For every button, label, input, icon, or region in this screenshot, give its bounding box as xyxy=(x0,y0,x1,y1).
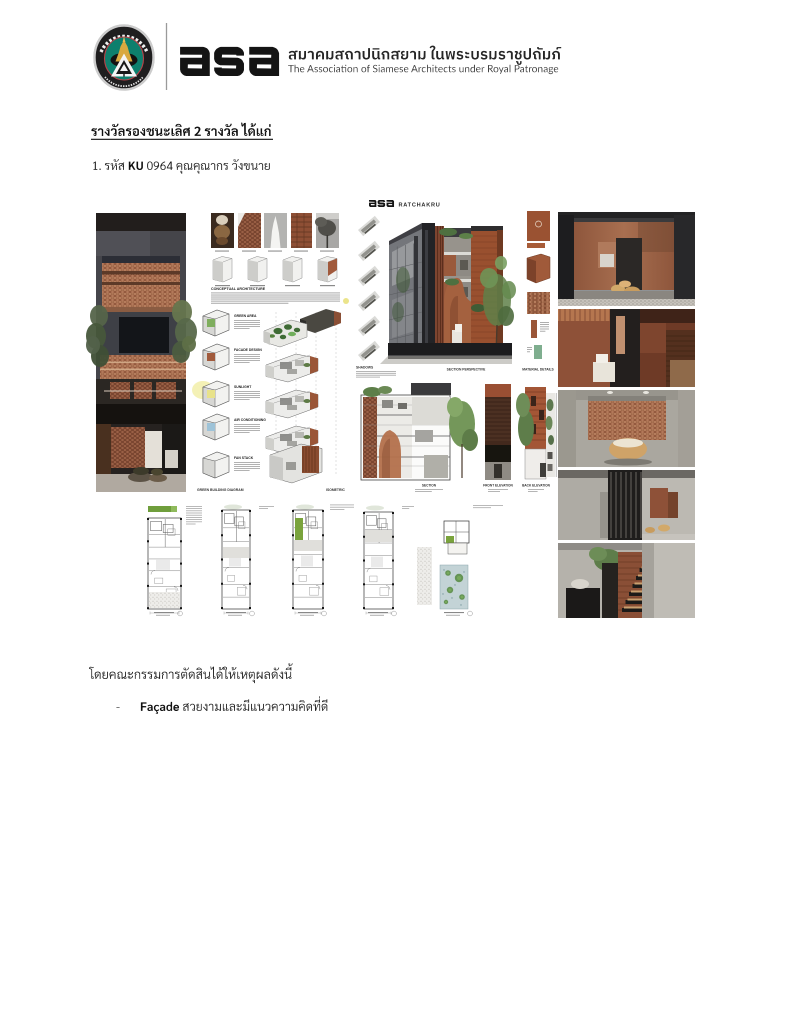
svg-text:SECTION: SECTION xyxy=(422,484,437,488)
svg-text:FAN STACK: FAN STACK xyxy=(234,456,254,460)
svg-text:BACK ELEVATION: BACK ELEVATION xyxy=(522,484,551,488)
svg-text:SECTION PERSPECTIVE: SECTION PERSPECTIVE xyxy=(447,368,486,372)
svg-text:MATERIAL DETAILS: MATERIAL DETAILS xyxy=(522,368,554,372)
svg-text:SUNLIGHT: SUNLIGHT xyxy=(234,385,252,389)
svg-text:FRONT ELEVATION: FRONT ELEVATION xyxy=(483,484,513,488)
svg-text:GREEN BUILDING DIAGRAM: GREEN BUILDING DIAGRAM xyxy=(197,488,244,492)
svg-text:FACADE DESIGN: FACADE DESIGN xyxy=(234,348,262,352)
svg-text:CONCEPTUAL ARCHITECTURE: CONCEPTUAL ARCHITECTURE xyxy=(211,287,266,291)
svg-text:AIR CONDITIONING: AIR CONDITIONING xyxy=(234,418,266,422)
svg-text:ISOMETRIC: ISOMETRIC xyxy=(326,488,345,492)
svg-text:GREEN AREA: GREEN AREA xyxy=(234,314,257,318)
svg-text:SHADOWS: SHADOWS xyxy=(356,366,374,370)
svg-text:RATCHAKRU: RATCHAKRU xyxy=(399,203,441,209)
